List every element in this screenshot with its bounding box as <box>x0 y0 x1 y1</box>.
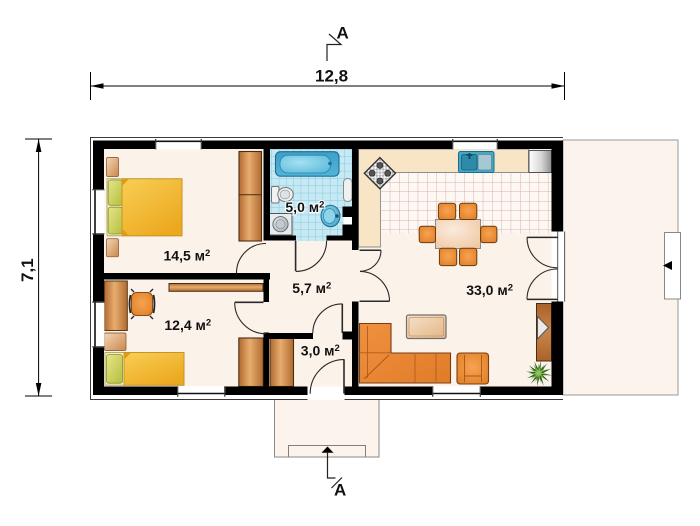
svg-text:3,0 м2: 3,0 м2 <box>301 343 340 359</box>
svg-text:12,8: 12,8 <box>315 67 348 86</box>
svg-text:33,0 м2: 33,0 м2 <box>466 282 513 298</box>
svg-text:12,4 м2: 12,4 м2 <box>164 317 211 333</box>
svg-text:5,0 м2: 5,0 м2 <box>285 199 324 215</box>
svg-text:5,7 м2: 5,7 м2 <box>292 280 331 296</box>
svg-text:A: A <box>334 481 346 500</box>
svg-text:A: A <box>337 24 349 43</box>
svg-text:14,5 м2: 14,5 м2 <box>164 248 211 264</box>
svg-text:7,1: 7,1 <box>18 258 37 282</box>
